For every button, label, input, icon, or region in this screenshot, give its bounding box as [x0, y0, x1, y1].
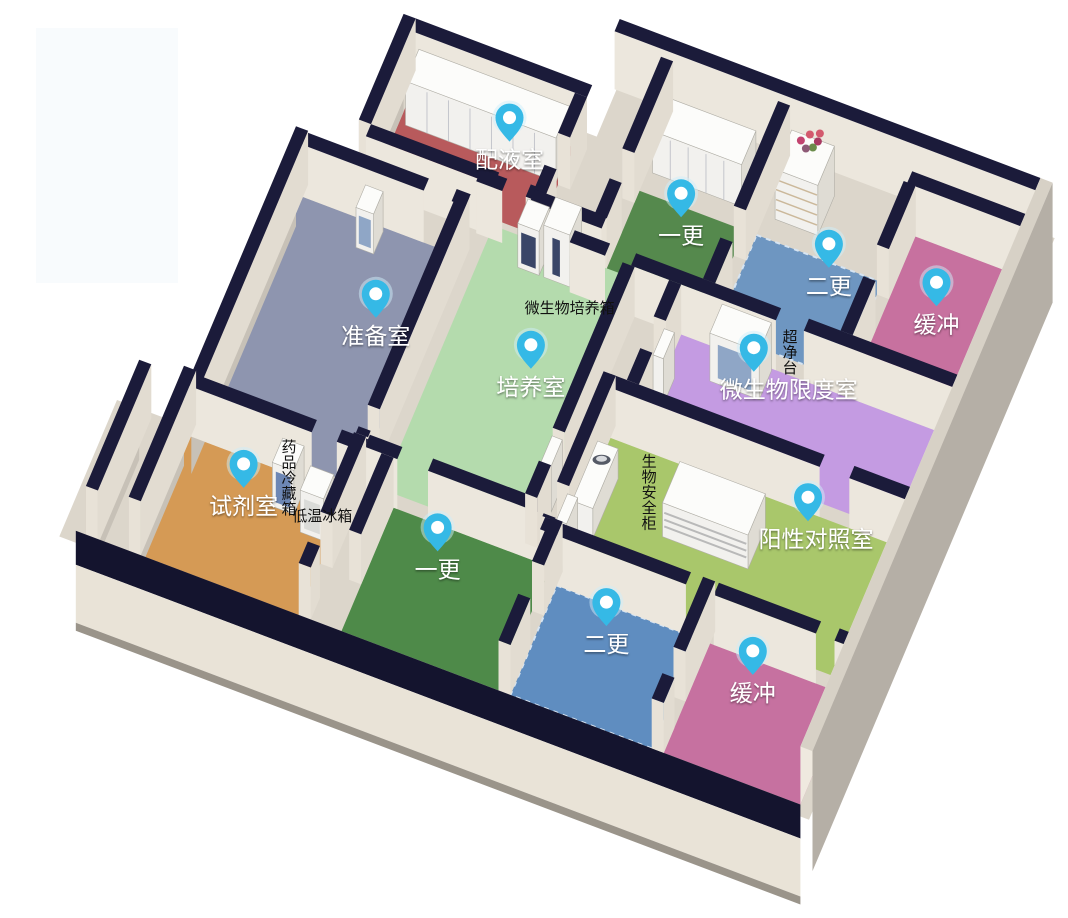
- room-label-ergeng_bottom: 二更: [583, 632, 629, 658]
- equip-label-low_temp_freezer: 低温冰箱: [292, 507, 352, 525]
- flowers: [802, 145, 810, 153]
- room-label-yangxing_duizhaoshi: 阳性对照室: [759, 527, 874, 553]
- room-label-yigeng_top: 一更: [658, 223, 704, 249]
- lab-floor-plan: 配液室一更二更缓冲准备室培养室微生物限度室试剂室一更二更阳性对照室缓冲微生物培养…: [0, 0, 1068, 918]
- room-label-peiyeshi: 配液室: [475, 148, 544, 174]
- flowers: [806, 131, 814, 139]
- equip-label-clean_bench: 超净台: [782, 328, 797, 377]
- wall: [570, 230, 610, 306]
- room-label-ergeng_top: 二更: [806, 274, 852, 300]
- room-label-shijishi: 试剂室: [209, 494, 278, 520]
- flowers: [797, 137, 805, 145]
- floor-plan-scene: 配液室一更二更缓冲准备室培养室微生物限度室试剂室一更二更阳性对照室缓冲微生物培养…: [0, 0, 1068, 918]
- flowers: [816, 130, 824, 138]
- equip-label-medicine_fridge: 药品冷藏箱: [281, 438, 296, 518]
- equip-label-biosafety_cabinet: 生物安全柜: [642, 453, 657, 533]
- room-label-yigeng_bottom: 一更: [415, 557, 461, 583]
- room-label-huanchong_bottom: 缓冲: [730, 681, 776, 707]
- room-label-zhunbeishi: 准备室: [341, 324, 410, 350]
- watermark-area: [36, 28, 178, 283]
- flowers: [809, 144, 817, 152]
- room-label-huanchong_top: 缓冲: [914, 312, 960, 338]
- equip-label-incubator: 微生物培养箱: [525, 299, 615, 317]
- room-label-peiyangshi: 培养室: [496, 375, 565, 401]
- room-label-weishengwu_xiandushi: 微生物限度室: [720, 378, 858, 404]
